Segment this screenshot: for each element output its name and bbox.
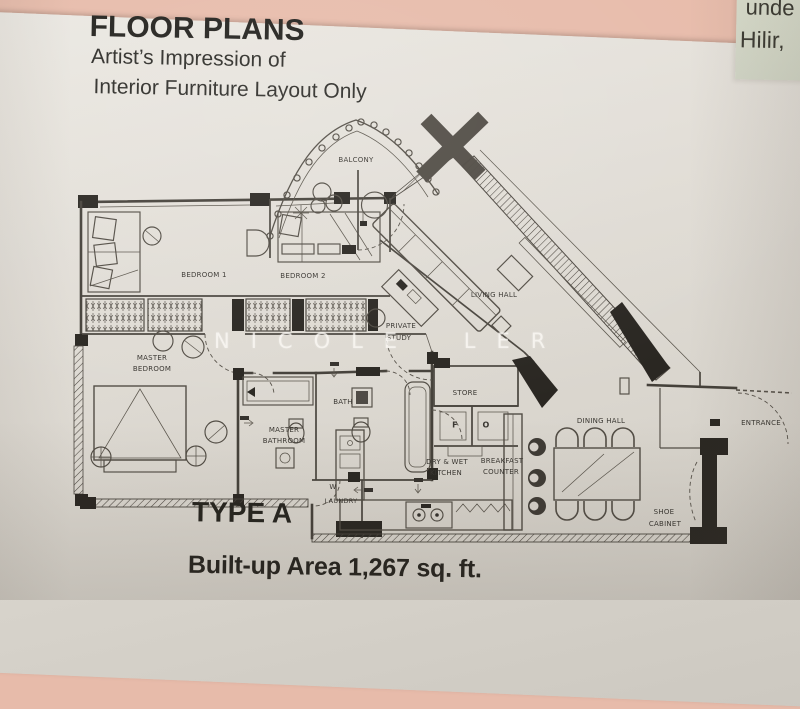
bedroom1-furniture <box>88 212 161 292</box>
dimension-marks <box>240 362 423 493</box>
bedroom1-label: BEDROOM 1 <box>181 271 226 279</box>
bottom-window-wall <box>312 534 696 542</box>
page-subtitle-2: Interior Furniture Layout Only <box>93 75 367 104</box>
type-label: TYPE A <box>192 496 293 529</box>
shoe-cabinet-label-1: SHOE <box>654 508 675 516</box>
built-up-area-label: Built-up Area 1,267 sq. ft. <box>188 551 482 585</box>
master-bedroom-label-1: MASTER <box>137 354 167 362</box>
oven-label: O <box>482 421 489 430</box>
side-table <box>497 255 532 290</box>
watermark: NICOLE LER <box>214 329 566 353</box>
shoe-cabinet-label-2: CABINET <box>649 520 681 528</box>
master-bathroom-fixtures <box>243 377 313 468</box>
page-title: FLOOR PLANS <box>89 10 305 48</box>
store-label: STORE <box>453 389 478 397</box>
entrance-label: ENTRANCE <box>741 419 781 427</box>
laundry-label: LAUNDRY <box>325 497 358 505</box>
balcony-label: BALCONY <box>338 156 373 164</box>
entrance-group <box>620 378 792 544</box>
balcony-group <box>267 119 458 254</box>
living-hall-label: LIVING HALL <box>471 291 517 299</box>
master-bedroom-furniture <box>91 331 227 472</box>
master-bathroom-label-2: BATHROOM <box>263 437 306 445</box>
master-bedroom-label-2: BEDROOM <box>133 365 171 373</box>
fridge-label: F <box>452 421 458 430</box>
dining-hall-label: DINING HALL <box>577 417 625 425</box>
kitchen-label-2: KITCHEN <box>430 469 462 477</box>
washer-label: W <box>329 483 336 491</box>
breakfast-counter-label-1: BREAKFAST <box>481 457 524 465</box>
breakfast-counter-label-2: COUNTER <box>483 468 519 476</box>
header-block: FLOOR PLANS Artist’s Impression of Inter… <box>88 8 470 125</box>
dining-set <box>554 428 640 520</box>
master-bathroom-label-1: MASTER <box>269 426 299 434</box>
bedroom2-label: BEDROOM 2 <box>280 272 325 280</box>
kitchen-label-1: DRY & WET <box>426 458 468 466</box>
page-subtitle-1: Artist’s Impression of <box>91 45 286 73</box>
bath-label: BATH <box>333 398 353 406</box>
